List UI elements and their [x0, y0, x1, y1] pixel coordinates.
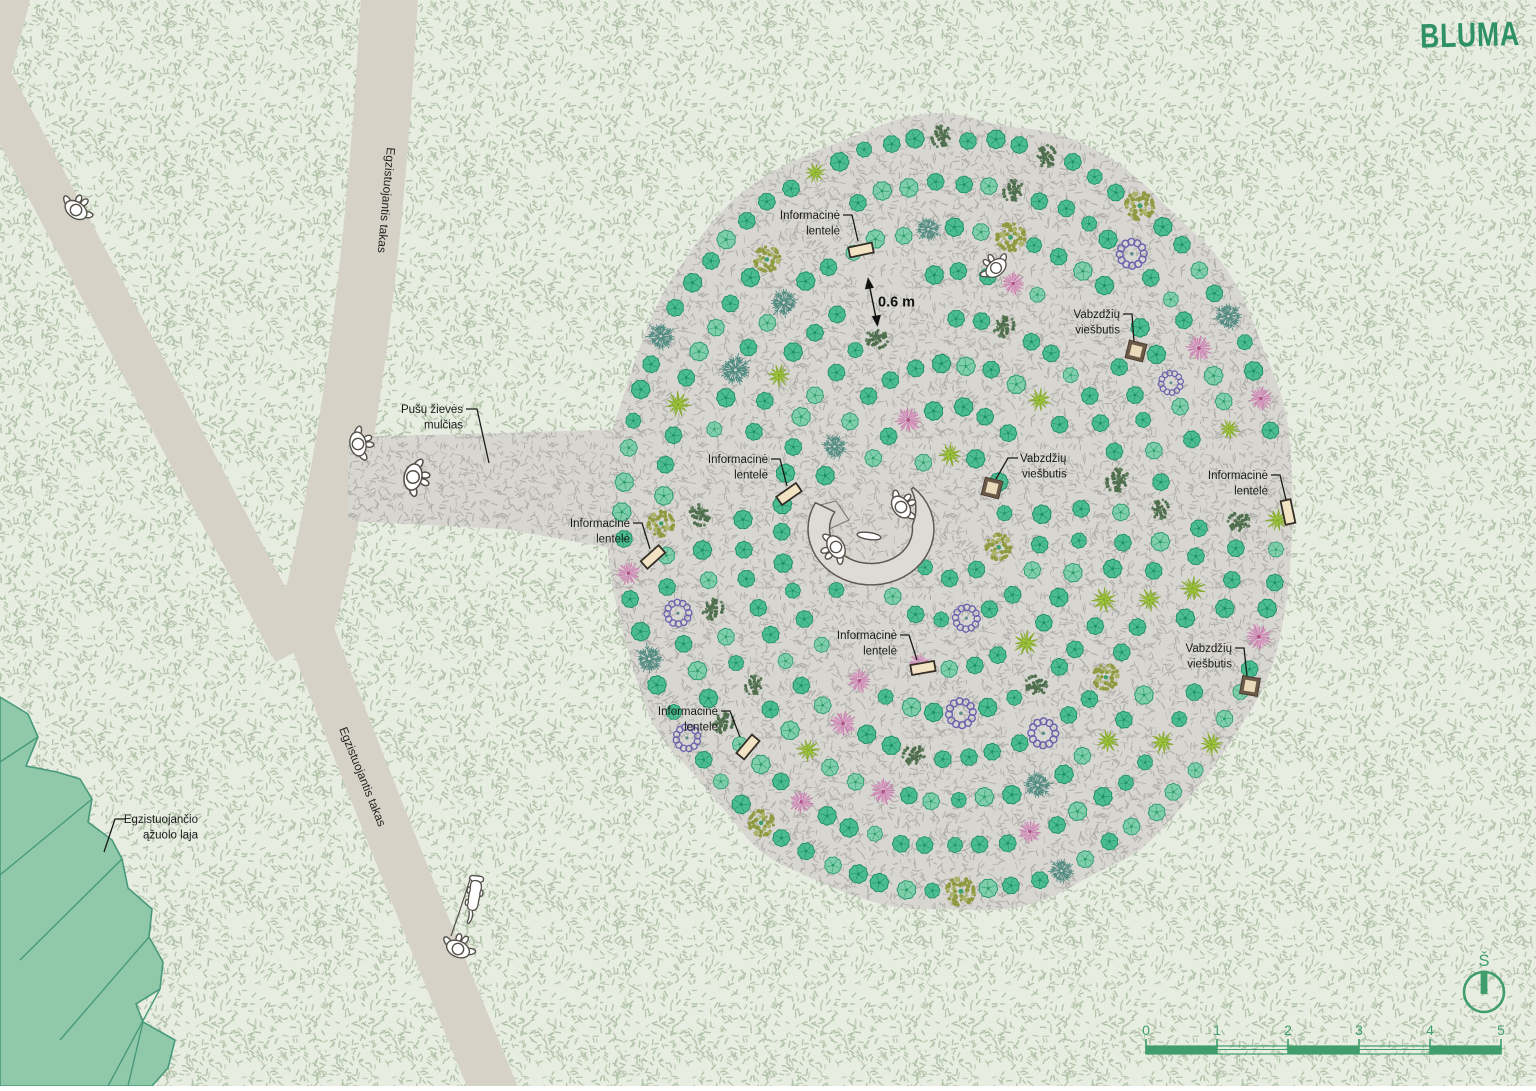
svg-text:lentelė: lentelė	[734, 470, 768, 482]
svg-text:lentelė: lentelė	[806, 226, 840, 238]
svg-text:lentelė: lentelė	[596, 534, 630, 546]
svg-text:0.6 m: 0.6 m	[878, 295, 915, 311]
svg-text:viešbutis: viešbutis	[1187, 659, 1232, 671]
svg-text:Informacinė: Informacinė	[1208, 470, 1268, 482]
svg-text:ąžuolo laja: ąžuolo laja	[143, 830, 199, 842]
svg-text:Vabzdžių: Vabzdžių	[1186, 643, 1232, 655]
svg-text:BLUMA: BLUMA	[1420, 15, 1521, 56]
svg-text:Egzistuojančio: Egzistuojančio	[124, 814, 198, 826]
svg-text:Informacinė: Informacinė	[780, 210, 840, 222]
svg-text:0: 0	[1142, 1022, 1150, 1038]
svg-text:Informacinė: Informacinė	[837, 630, 897, 642]
svg-text:Vabzdžių: Vabzdžių	[1074, 309, 1120, 321]
svg-text:Informacinė: Informacinė	[570, 518, 630, 530]
svg-text:4: 4	[1426, 1022, 1434, 1038]
svg-text:mulčias: mulčias	[424, 420, 463, 432]
svg-text:3: 3	[1355, 1022, 1363, 1038]
svg-text:1: 1	[1213, 1022, 1221, 1038]
svg-text:Informacinė: Informacinė	[658, 706, 718, 718]
svg-text:lentelė: lentelė	[1234, 486, 1268, 498]
svg-text:Pušų žievės: Pušų žievės	[401, 404, 463, 416]
svg-text:viešbutis: viešbutis	[1022, 469, 1067, 481]
svg-text:2: 2	[1284, 1022, 1292, 1038]
svg-text:Informacinė: Informacinė	[708, 454, 768, 466]
svg-text:viešbutis: viešbutis	[1075, 325, 1120, 337]
svg-text:Vabzdžių: Vabzdžių	[1020, 453, 1066, 465]
svg-text:Š: Š	[1478, 951, 1489, 970]
svg-text:lentelė: lentelė	[863, 646, 897, 658]
svg-text:lentelė: lentelė	[684, 722, 718, 734]
svg-text:5: 5	[1497, 1022, 1505, 1038]
